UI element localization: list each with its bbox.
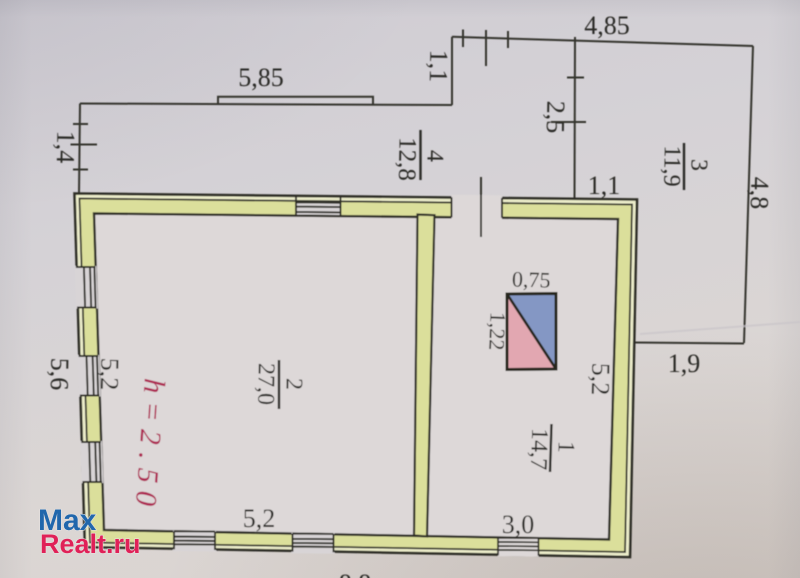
svg-text:4,85: 4,85 (584, 11, 630, 40)
svg-text:5,2: 5,2 (243, 504, 276, 533)
svg-text:4: 4 (421, 150, 447, 162)
svg-text:4,8: 4,8 (745, 177, 775, 210)
svg-text:2,5: 2,5 (541, 101, 571, 134)
svg-text:27,0: 27,0 (252, 363, 279, 405)
svg-text:1,4: 1,4 (51, 131, 81, 164)
svg-text:5,6: 5,6 (45, 358, 75, 391)
svg-text:1,9: 1,9 (668, 349, 701, 378)
svg-text:0,75: 0,75 (512, 266, 551, 292)
svg-text:5,2: 5,2 (95, 358, 125, 391)
svg-text:5,85: 5,85 (238, 63, 284, 92)
svg-text:2: 2 (280, 378, 306, 390)
svg-text:12,8: 12,8 (393, 137, 421, 181)
svg-text:1,1: 1,1 (588, 171, 621, 200)
svg-text:3: 3 (685, 159, 711, 171)
svg-text:11,9: 11,9 (658, 145, 685, 187)
svg-text:Realt.ru: Realt.ru (40, 529, 141, 559)
svg-text:5,2: 5,2 (586, 363, 616, 396)
svg-text:1,1: 1,1 (424, 50, 454, 83)
svg-text:1,22: 1,22 (484, 311, 510, 350)
svg-text:8,8: 8,8 (339, 569, 372, 578)
svg-text:14,7: 14,7 (525, 428, 552, 471)
svg-text:3,0: 3,0 (502, 510, 535, 539)
svg-text:1: 1 (552, 441, 578, 454)
